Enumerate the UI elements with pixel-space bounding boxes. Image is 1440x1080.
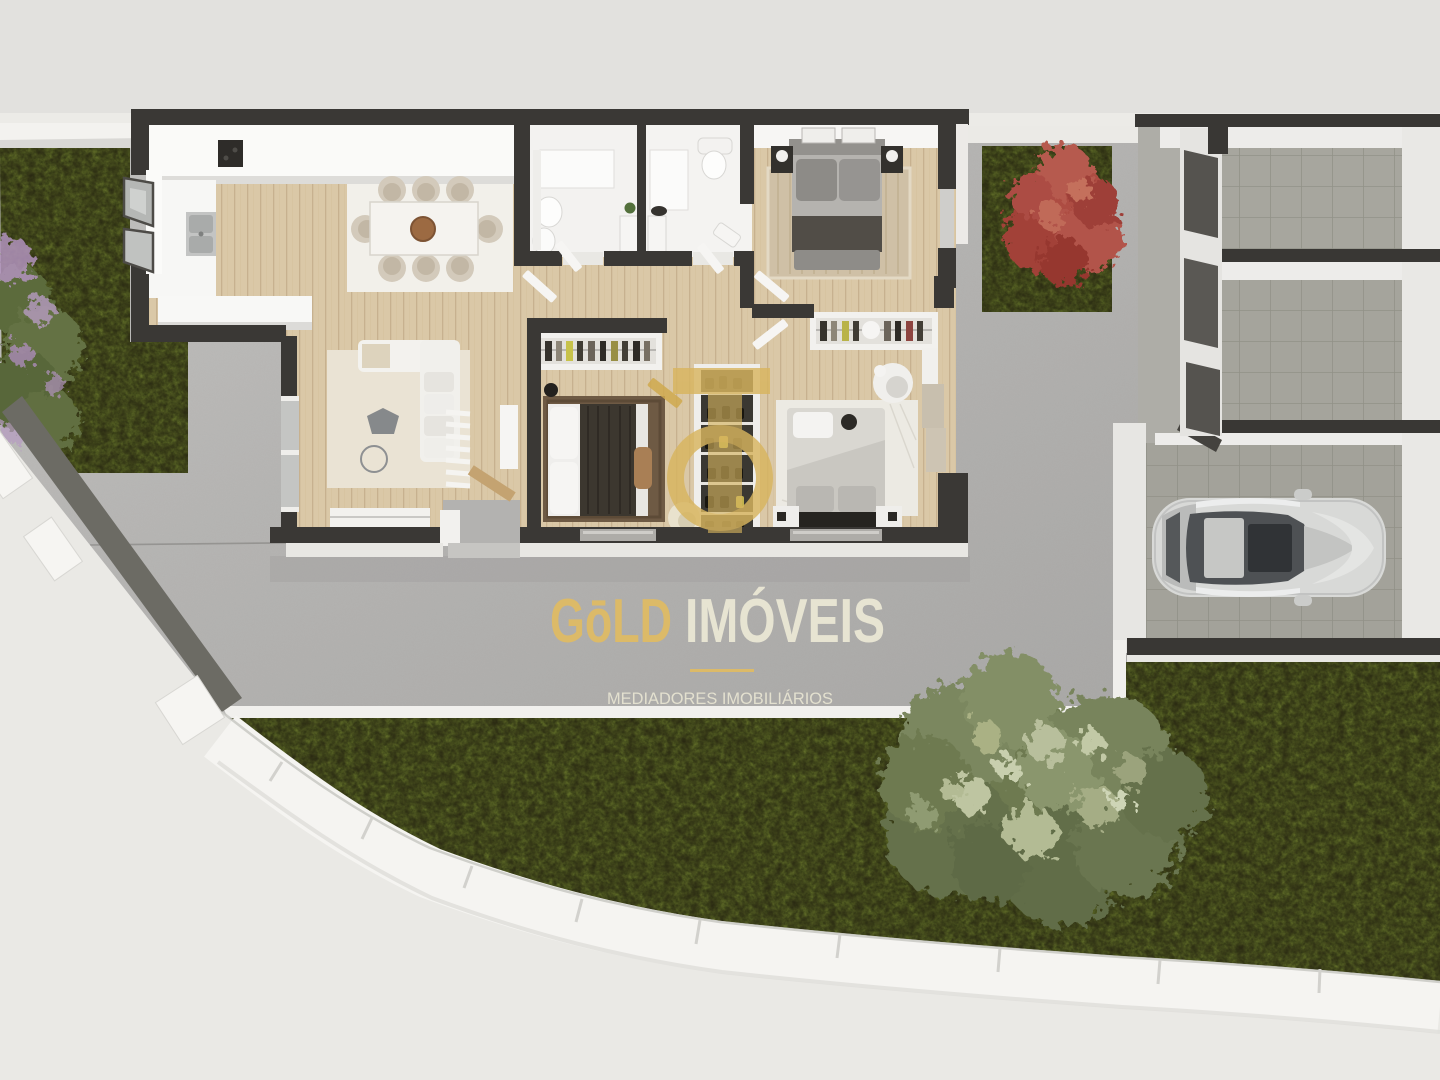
- svg-text:MEDIADORES IMOBILIÁRIOS: MEDIADORES IMOBILIÁRIOS: [607, 689, 833, 708]
- svg-text:GōLD: GōLD: [550, 587, 672, 656]
- svg-text:IMÓVEIS: IMÓVEIS: [685, 587, 885, 656]
